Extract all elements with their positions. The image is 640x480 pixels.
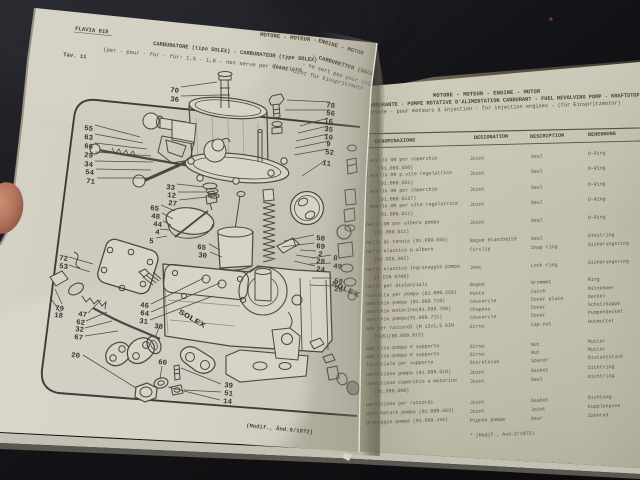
svg-text:O-Ring: O-Ring: [588, 214, 606, 221]
svg-text:Kupplungsse: Kupplungsse: [588, 403, 621, 410]
svg-text:Joint: Joint: [470, 408, 485, 415]
svg-text:BENENNUNG: BENENNUNG: [588, 131, 616, 138]
svg-text:Seal: Seal: [531, 154, 543, 160]
svg-text:54: 54: [85, 169, 95, 178]
svg-text:Joint: Joint: [470, 378, 485, 385]
svg-text:Ecrou: Ecrou: [470, 343, 485, 350]
svg-text:Circlip: Circlip: [470, 246, 491, 253]
svg-text:Gleitring: Gleitring: [588, 232, 615, 239]
svg-text:O-Ring: O-Ring: [588, 196, 606, 203]
svg-text:67: 67: [74, 334, 84, 343]
svg-text:Schutzkappe: Schutzkappe: [588, 301, 621, 308]
svg-text:O-Ring: O-Ring: [588, 150, 606, 157]
svg-text:20: 20: [71, 352, 81, 361]
svg-text:Lock ring: Lock ring: [531, 262, 558, 269]
svg-text:Seal: Seal: [531, 218, 543, 224]
svg-text:Dichtring: Dichtring: [588, 373, 615, 380]
svg-text:Cover: Cover: [531, 312, 546, 319]
svg-text:Jonc: Jonc: [470, 265, 482, 271]
svg-text:Seal: Seal: [531, 377, 543, 383]
svg-text:Joint: Joint: [470, 186, 485, 193]
svg-text:Joint: Joint: [470, 399, 485, 406]
svg-text:Dichtung: Dichtung: [588, 394, 612, 401]
svg-text:60: 60: [158, 359, 168, 368]
svg-text:Seal: Seal: [531, 185, 543, 191]
svg-text:Mutter: Mutter: [588, 346, 606, 353]
svg-text:Chapeau: Chapeau: [470, 306, 491, 313]
svg-text:71: 71: [86, 178, 96, 187]
svg-text:Deckel: Deckel: [588, 293, 606, 300]
svg-text:O-Ring: O-Ring: [588, 181, 606, 188]
svg-text:Cover: Cover: [531, 304, 546, 311]
svg-text:Couvercle: Couvercle: [470, 298, 497, 305]
svg-text:Couvercle: Couvercle: [470, 314, 497, 321]
svg-text:Gasket: Gasket: [531, 367, 549, 374]
svg-text:Cover plate: Cover plate: [531, 296, 564, 303]
svg-text:70: 70: [170, 87, 180, 96]
svg-text:Nut: Nut: [531, 342, 540, 348]
svg-text:Patte: Patte: [470, 290, 485, 297]
svg-text:18: 18: [54, 312, 64, 321]
svg-text:Seal: Seal: [531, 236, 543, 242]
svg-text:Seal: Seal: [531, 200, 543, 206]
svg-text:Gasket: Gasket: [531, 397, 549, 404]
svg-text:Gear: Gear: [531, 416, 543, 422]
svg-text:Joint: Joint: [470, 155, 485, 162]
svg-text:30: 30: [198, 252, 208, 261]
svg-text:63: 63: [84, 134, 94, 143]
svg-text:Nut: Nut: [531, 350, 540, 356]
svg-text:Mutter: Mutter: [588, 338, 606, 345]
svg-text:38: 38: [154, 323, 164, 332]
svg-text:29: 29: [84, 152, 94, 161]
svg-text:27: 27: [168, 200, 178, 209]
svg-text:Ecrou: Ecrou: [470, 351, 485, 358]
svg-text:53: 53: [59, 263, 69, 272]
svg-text:Seal: Seal: [531, 169, 543, 175]
svg-text:Grommet: Grommet: [531, 279, 552, 286]
svg-text:Bague: Bague: [470, 281, 485, 288]
svg-text:Joint: Joint: [531, 406, 546, 413]
svg-text:Joint: Joint: [470, 219, 485, 226]
svg-text:14: 14: [223, 398, 233, 407]
svg-text:Hutmutter: Hutmutter: [588, 318, 615, 325]
svg-text:36: 36: [170, 96, 180, 105]
svg-text:Ecrou: Ecrou: [470, 323, 485, 330]
svg-text:Joint: Joint: [470, 369, 485, 376]
svg-text:Joint: Joint: [470, 170, 485, 177]
svg-text:Zahnrad: Zahnrad: [588, 412, 609, 419]
svg-text:Entretoise: Entretoise: [470, 359, 500, 366]
svg-text:Snap ring: Snap ring: [531, 244, 558, 251]
svg-text:31: 31: [139, 318, 149, 327]
svg-text:Joint: Joint: [470, 201, 485, 208]
svg-text:Dichtring: Dichtring: [588, 364, 615, 371]
svg-text:Spacer: Spacer: [531, 357, 549, 364]
svg-text:Ring: Ring: [588, 277, 600, 283]
svg-text:66: 66: [84, 143, 94, 152]
svg-text:Catch: Catch: [531, 288, 546, 295]
svg-text:O-Ring: O-Ring: [588, 165, 606, 172]
svg-text:Cap nut: Cap nut: [531, 321, 552, 328]
svg-text:Mitnehmer: Mitnehmer: [588, 285, 615, 292]
svg-text:55: 55: [84, 125, 94, 134]
